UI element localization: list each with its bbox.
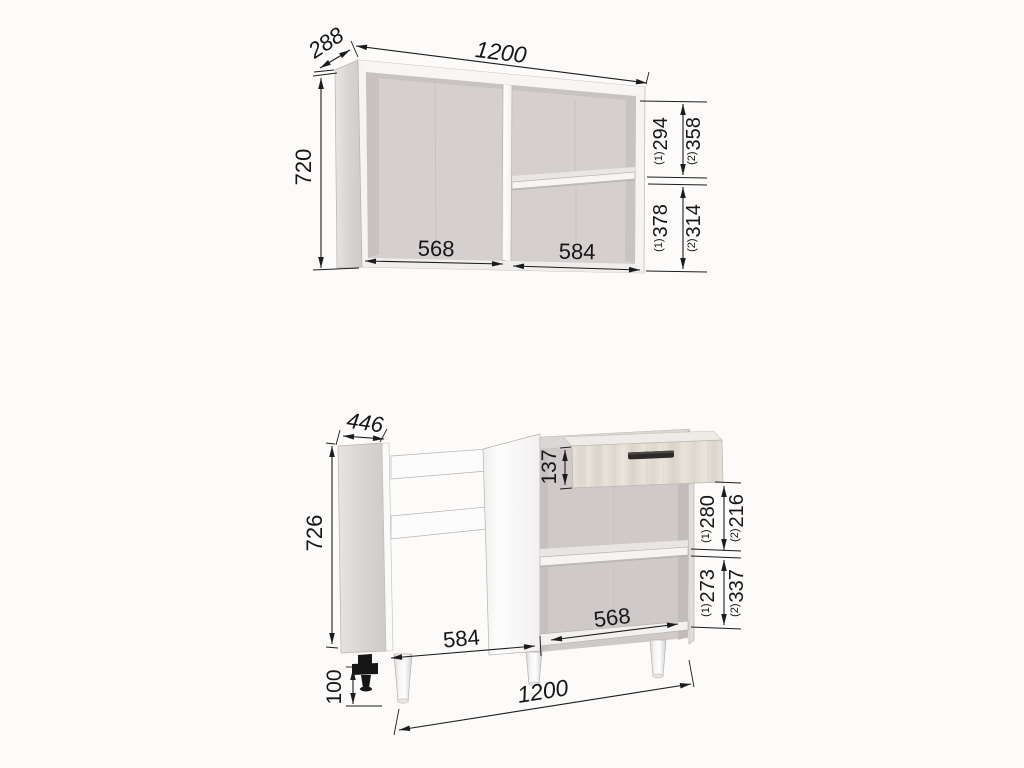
opt2-mark: (2) <box>686 151 698 164</box>
opt2-value: 314 <box>683 204 705 237</box>
dim-base-width-label: 1200 <box>515 674 570 708</box>
dim-wall-bottom-section-opt1: (1)378 <box>650 204 672 252</box>
dim-base-sections: (1)280 (2)216 (1)273 (2)337 <box>691 482 748 629</box>
adjustable-foot <box>352 654 378 692</box>
opt2-value: 337 <box>726 569 748 602</box>
dim-wall-sections: (1)294 (2)358 (1)378 (2)314 <box>640 101 707 272</box>
dim-base-depth: 446 <box>336 408 387 445</box>
wall-cabinet-left-panel <box>335 60 362 268</box>
opt2-value: 216 <box>726 494 748 527</box>
opt1-value: 273 <box>697 569 719 602</box>
dim-wall-depth-label: 288 <box>303 22 349 64</box>
base-cabinet-drawing: 446 726 100 137 584 <box>302 408 748 735</box>
base-cabinet-mid-rail <box>391 507 487 539</box>
dim-base-top-section-opt1: (1)280 <box>697 495 719 543</box>
dim-wall-width-label: 1200 <box>474 36 528 68</box>
dim-base-left-opening-label: 584 <box>442 624 481 652</box>
dim-base-top-section-opt2: (2)216 <box>726 494 748 542</box>
opt1-value: 280 <box>697 495 719 528</box>
dim-base-bottom-section-opt2: (2)337 <box>726 569 748 617</box>
dim-base-height-label: 726 <box>302 515 327 552</box>
base-cabinet-top-rail <box>391 449 487 479</box>
dim-base-height: 726 <box>302 443 338 648</box>
opt1-mark: (1) <box>700 529 712 542</box>
wall-cabinet-divider <box>502 84 512 262</box>
drawer <box>563 431 723 488</box>
opt2-mark: (2) <box>686 238 698 251</box>
opt1-mark: (1) <box>653 238 665 251</box>
opt1-mark: (1) <box>700 603 712 616</box>
leg-right <box>650 640 666 676</box>
base-cabinet-divider <box>483 434 540 655</box>
leg-front-left <box>394 654 412 701</box>
dim-base-depth-label: 446 <box>345 408 386 438</box>
dim-wall-right-opening-label: 584 <box>559 239 596 265</box>
base-cabinet-left-panel <box>338 443 386 653</box>
opt1-value: 294 <box>650 117 672 150</box>
dim-wall-left-opening-label: 568 <box>418 236 455 262</box>
technical-drawing-canvas: 288 1200 720 568 584 <box>0 0 1024 768</box>
opt2-value: 358 <box>683 117 705 150</box>
drawer-front <box>572 440 723 488</box>
wall-cabinet-interior-left-shade <box>366 72 379 258</box>
opt1-value: 378 <box>650 204 672 237</box>
dim-base-width: 1200 <box>394 660 694 735</box>
furniture-dimension-drawing: 288 1200 720 568 584 <box>0 0 1024 768</box>
dim-leg-height-label: 100 <box>323 669 346 704</box>
dim-wall-height-label: 720 <box>291 149 316 186</box>
dim-wall-top-section-opt2: (2)358 <box>683 117 705 165</box>
dim-base-right-opening-label: 568 <box>592 603 631 632</box>
opt2-mark: (2) <box>729 528 741 541</box>
dim-wall-top-section-opt1: (1)294 <box>650 117 672 165</box>
opt1-mark: (1) <box>653 151 665 164</box>
dim-wall-bottom-section-opt2: (2)314 <box>683 204 705 252</box>
wall-cabinet-drawing: 288 1200 720 568 584 <box>291 22 707 273</box>
opt2-mark: (2) <box>729 603 741 616</box>
wall-cabinet-interior-back <box>366 72 636 264</box>
dim-drawer-height-label: 137 <box>538 449 561 484</box>
dim-base-bottom-section-opt1: (1)273 <box>697 569 719 617</box>
